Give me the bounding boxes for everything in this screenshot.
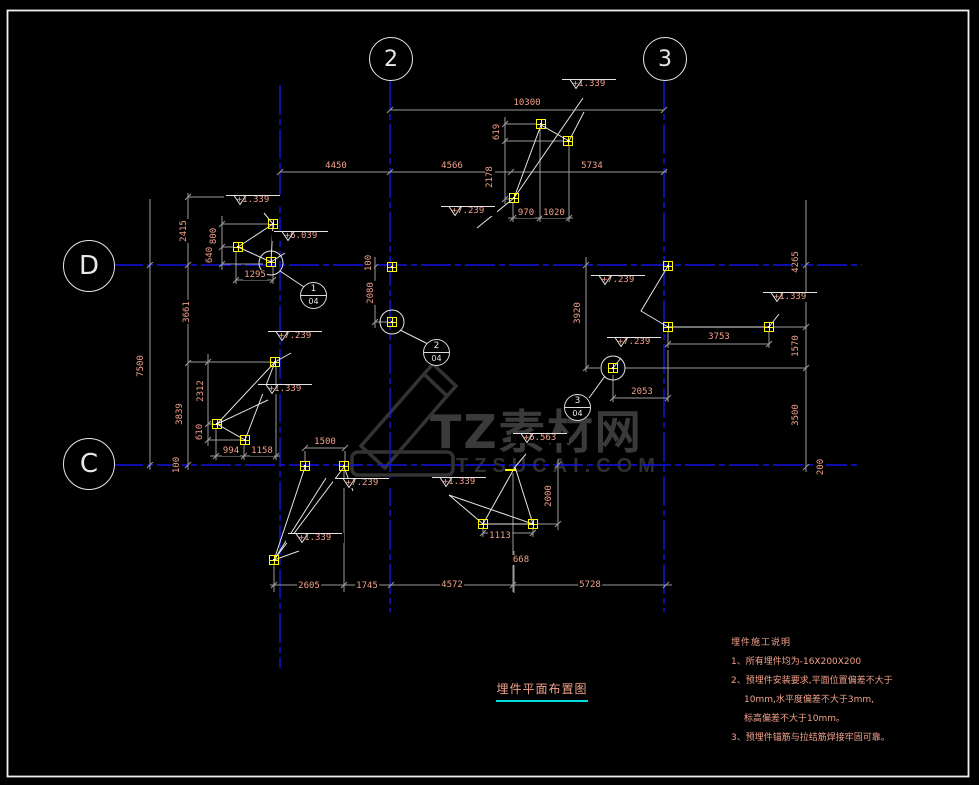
notes-heading: 埋件施工说明 [731,634,921,653]
elevation-triangle-icon [605,337,663,348]
dim-label: 2080 [366,281,376,305]
callout-sheet-number: 04 [301,296,326,307]
dim-label: 3753 [707,332,731,342]
callout-sheet-number: 04 [424,353,449,364]
elevation-triangle-icon [272,231,330,242]
elevation-marker: +7.239 [605,337,663,347]
dim-label: 1158 [250,446,274,456]
dim-label: 2053 [630,387,654,397]
dim-label: 800 [209,227,219,245]
embed-plate-marker [764,322,774,332]
embed-plate-marker [233,242,243,252]
dim-label: 640 [205,246,215,264]
embed-plate-marker [240,435,250,445]
dim-label: 3500 [791,403,801,427]
embed-plate-marker [212,419,222,429]
callout-detail-number: 2 [424,340,449,353]
dim-label: 4572 [440,580,464,590]
embed-plate-marker [387,317,397,327]
note-line: 10mm,水平度偏差不大于3mm, [731,691,921,710]
note-line: 2、预埋件安装要求,平面位置偏差不大于 [731,672,921,691]
embed-plate-marker [536,119,546,129]
note-line: 标高偏差不大于10mm。 [731,710,921,729]
grid-bubble-D: D [63,240,115,292]
dim-label: 619 [492,123,502,141]
elevation-marker: +7.239 [333,478,391,488]
elevation-triangle-icon [224,195,282,206]
elevation-triangle-icon [511,433,569,444]
elevation-marker: +1.339 [224,195,282,205]
elevation-triangle-icon [256,384,314,395]
dim-label: 4265 [791,250,801,274]
detail-callout: 304 [564,394,591,421]
embed-plate-marker [663,261,673,271]
dim-label: 7500 [136,354,146,378]
dim-label: 100 [172,456,182,474]
elevation-triangle-icon [560,79,618,90]
embed-plate-marker [268,219,278,229]
dim-label: 2605 [297,581,321,591]
note-line: 1、所有埋件均为-16X200X200 [731,653,921,672]
title-underline [496,700,588,702]
drawing-title: 埋件平面布置图 [496,680,588,697]
elevation-marker: +1.339 [430,477,488,487]
elevation-marker: +1.339 [256,384,314,394]
cad-drawing-canvas: TZ素材网 TZSUCAI.COM [0,0,979,785]
elevation-triangle-icon [430,477,488,488]
embed-plate-marker [339,461,349,471]
dim-label: 5734 [580,161,604,171]
note-line: 3、预埋件锚筋与拉结筋焊接牢固可靠。 [731,729,921,748]
elevation-marker: +1.339 [761,292,819,302]
dim-label: 2312 [196,379,206,403]
dim-label: 2000 [544,484,554,508]
dim-label: 4450 [324,161,348,171]
embed-plate-marker [300,461,310,471]
dim-label: 4566 [440,161,464,171]
dim-label: 994 [222,446,240,456]
dim-label: 200 [816,458,826,476]
embed-plate-marker [478,519,488,529]
embed-plate-marker [269,555,279,565]
callout-detail-number: 1 [301,283,326,296]
embed-plate-marker [266,257,276,267]
elevation-marker: +1.339 [560,79,618,89]
construction-notes: 埋件施工说明 1、所有埋件均为-16X200X2002、预埋件安装要求,平面位置… [731,634,921,748]
drawing-title-block: 埋件平面布置图 [496,680,588,702]
dim-label: 2415 [179,219,189,243]
dim-label: 668 [512,555,530,565]
dim-label: 3920 [573,301,583,325]
dim-label: 2178 [485,165,495,189]
dim-label: 610 [195,423,205,441]
elevation-marker: +7.239 [589,275,647,285]
grid-bubble-3: 3 [643,37,687,81]
embed-plate-marker [608,363,618,373]
dim-label: 100 [364,254,374,272]
dim-label: 3839 [175,402,185,426]
dim-label: 1295 [243,270,267,280]
detail-callout: 204 [423,339,450,366]
elevation-triangle-icon [286,533,344,544]
elevation-triangle-icon [589,275,647,286]
dim-label: 3661 [182,300,192,324]
embed-plate-marker [509,193,519,203]
elevation-marker: +7.239 [266,331,324,341]
dim-label: 1745 [355,581,379,591]
embed-plate-marker [663,322,673,332]
dim-label: 5728 [578,580,602,590]
dim-label: 10300 [512,98,541,108]
elevation-triangle-icon [333,478,391,489]
dim-label: 1113 [488,531,512,541]
elevation-marker: +7.239 [439,206,497,216]
detail-callout: 104 [300,282,327,309]
elevation-marker: +6.039 [272,231,330,241]
dim-label: 1570 [791,334,801,358]
elevation-triangle-icon [761,292,819,303]
grid-bubble-2: 2 [369,37,413,81]
embed-plate-marker [270,357,280,367]
dim-label: 1020 [542,208,566,218]
elevation-marker: +6.563 [511,433,569,443]
dim-label: 970 [517,208,535,218]
grid-bubble-C: C [63,438,115,490]
embed-plate-marker [387,262,397,272]
embed-plate-marker [528,519,538,529]
elevation-triangle-icon [266,331,324,342]
dim-label: 1500 [313,437,337,447]
callout-sheet-number: 04 [565,408,590,419]
elevation-marker: +1.339 [286,533,344,543]
elevation-triangle-icon [439,206,497,217]
embed-plate-marker [563,136,573,146]
callout-detail-number: 3 [565,395,590,408]
